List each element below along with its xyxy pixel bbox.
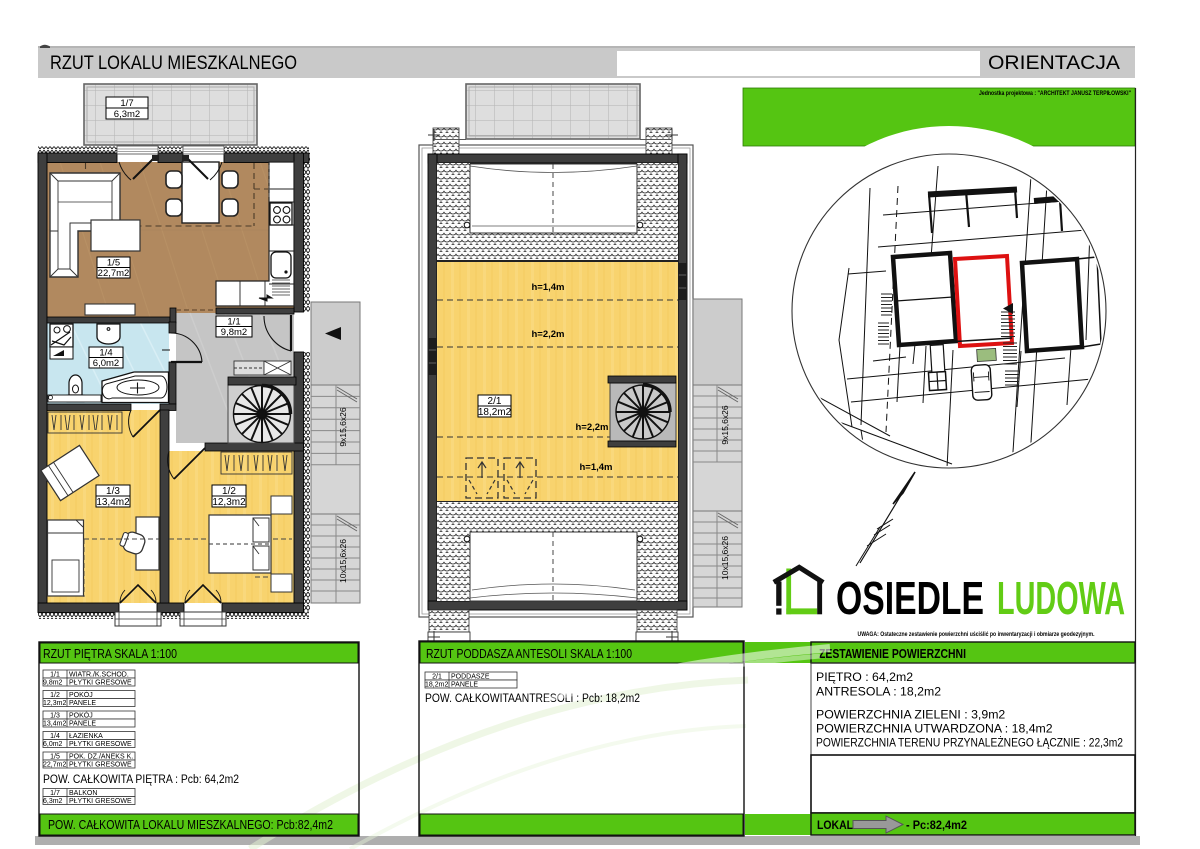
svg-text:POWIERZCHNIA ZIELENI : 3,9m2: POWIERZCHNIA ZIELENI : 3,9m2 [816,708,1005,722]
svg-text:9,8m2: 9,8m2 [221,327,247,338]
svg-text:POKÓJ: POKÓJ [69,690,93,699]
svg-text:1/1: 1/1 [227,317,240,328]
svg-text:ANTRESOLA : 18,2m2: ANTRESOLA : 18,2m2 [816,685,941,699]
svg-text:2/1: 2/1 [432,674,442,681]
svg-text:h=2,2m: h=2,2m [531,329,564,340]
svg-text:ZESTAWIENIE POWIERZCHNI: ZESTAWIENIE POWIERZCHNI [819,646,966,661]
svg-text:WIATR./K.SCHOD.: WIATR./K.SCHOD. [69,672,129,679]
svg-text:h=1,4m: h=1,4m [579,462,612,473]
svg-text:1/7: 1/7 [120,98,133,109]
svg-text:ORIENTACJA: ORIENTACJA [988,53,1120,74]
svg-text:13,4m2: 13,4m2 [43,721,66,728]
svg-text:1/7: 1/7 [50,790,60,797]
svg-text:UWAGA: Ostateczne zestawienie: UWAGA: Ostateczne zestawienie powierzchn… [858,631,1095,638]
svg-text:RZUT PIĘTRA SKALA 1:100: RZUT PIĘTRA SKALA 1:100 [43,646,177,661]
svg-text:1/2: 1/2 [222,486,236,497]
svg-text:13,4m2: 13,4m2 [96,497,130,508]
svg-text:RZUT PODDASZA ANTESOLI SKALA: RZUT PODDASZA ANTESOLI SKALA 1:100 [426,646,632,661]
svg-text:1/3: 1/3 [50,713,60,720]
svg-text:h=2,2m: h=2,2m [575,422,608,433]
svg-text:POWIERZCHNIA TERENU PRZYNALEŻN: POWIERZCHNIA TERENU PRZYNALEŻNEGO ŁĄCZNI… [816,736,1123,750]
svg-text:6,3m2: 6,3m2 [114,109,140,120]
svg-text:10x15,6x26: 10x15,6x26 [338,539,348,583]
svg-text:POW. CAŁKOWITAANTRESOLI : Pcb:: POW. CAŁKOWITAANTRESOLI : Pcb: 18,2m2 [425,691,640,705]
svg-text:POK. DZ./ANEKS K.: POK. DZ./ANEKS K. [69,754,133,761]
svg-text:6,3m2: 6,3m2 [43,798,63,805]
svg-text:POW. CAŁKOWITA LOKALU MIESZKA: POW. CAŁKOWITA LOKALU MIESZKALNEGO: Pcb:… [48,817,333,832]
svg-text:LUDOWA: LUDOWA [997,572,1125,624]
svg-text:22,7m2: 22,7m2 [98,268,130,279]
svg-text:18,2m2: 18,2m2 [478,407,512,418]
svg-text:- Pc:82,4m2: - Pc:82,4m2 [906,818,967,832]
svg-text:1/5: 1/5 [107,258,120,269]
svg-text:6,0m2: 6,0m2 [93,358,119,369]
svg-text:PIĘTRO : 64,2m2: PIĘTRO : 64,2m2 [816,670,913,684]
svg-text:PŁYTKI GRESOWE: PŁYTKI GRESOWE [69,680,132,687]
svg-text:RZUT LOKALU MIESZKALNEGO: RZUT LOKALU MIESZKALNEGO [50,53,297,74]
svg-text:1/5: 1/5 [50,754,60,761]
svg-text:OSIEDLE: OSIEDLE [836,572,984,624]
svg-text:1/1: 1/1 [50,672,60,679]
svg-text:PANELE: PANELE [451,682,478,689]
svg-text:9x15,6x26: 9x15,6x26 [720,405,730,444]
svg-text:PANELE: PANELE [69,721,96,728]
svg-text:POKÓJ: POKÓJ [69,711,93,720]
svg-text:PANELE: PANELE [69,700,96,707]
svg-text:ŁAZIENKA: ŁAZIENKA [69,733,103,740]
svg-text:10x15,6x26: 10x15,6x26 [720,536,730,580]
svg-text:PŁYTKI GRESOWE: PŁYTKI GRESOWE [69,741,132,748]
svg-text:9x15,6x26: 9x15,6x26 [338,407,348,446]
svg-text:22,7m2: 22,7m2 [43,762,66,769]
svg-text:18,2m2: 18,2m2 [425,682,448,689]
svg-text:6,0m2: 6,0m2 [43,741,63,748]
svg-text:1/4: 1/4 [50,733,60,740]
svg-text:12,3m2: 12,3m2 [43,700,66,707]
svg-text:PŁYTKI GRESOWE: PŁYTKI GRESOWE [69,798,132,805]
svg-text:BALKON: BALKON [69,790,97,797]
svg-text:PŁYTKI GRESOWE: PŁYTKI GRESOWE [69,762,132,769]
svg-text:POWIERZCHNIA UTWARDZONA : 18,4: POWIERZCHNIA UTWARDZONA : 18,4m2 [816,722,1053,736]
svg-text:POW. CAŁKOWITA PIĘTRA : Pcb: 6: POW. CAŁKOWITA PIĘTRA : Pcb: 64,2m2 [43,774,239,786]
svg-text:12,3m2: 12,3m2 [212,497,246,508]
svg-text:1/4: 1/4 [99,348,112,359]
svg-text:h=1,4m: h=1,4m [531,282,564,293]
svg-text:9,8m2: 9,8m2 [43,680,63,687]
svg-text:1/3: 1/3 [106,486,120,497]
svg-text:2/1: 2/1 [488,396,502,407]
svg-text:LOKAL: LOKAL [817,818,853,832]
svg-text:Jednostka projektowa : "ARCHIT: Jednostka projektowa : "ARCHITEKT JANUSZ… [979,90,1131,97]
svg-text:1/2: 1/2 [50,692,60,699]
svg-text:PODDASZE: PODDASZE [451,674,490,681]
